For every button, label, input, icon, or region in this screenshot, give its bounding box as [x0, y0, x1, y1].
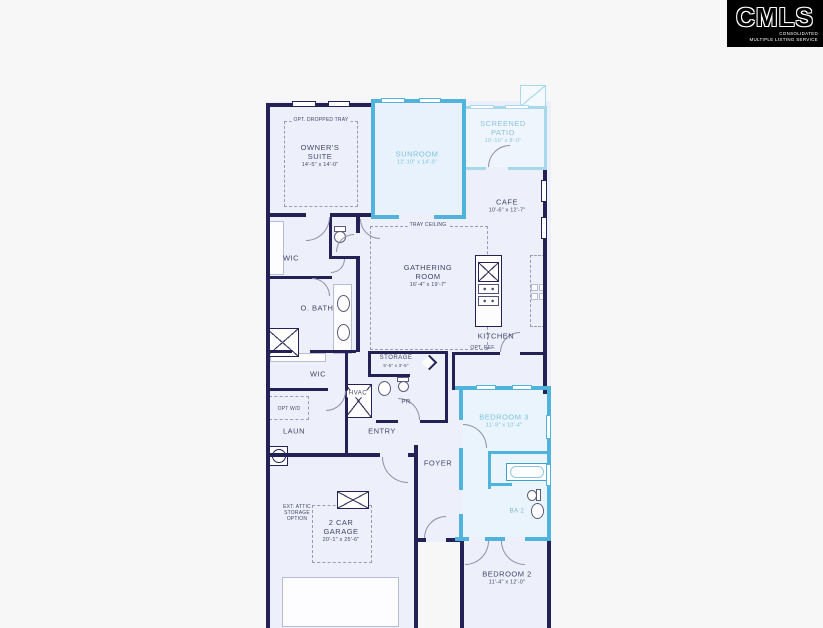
room-dims: 14'-5" x 14'-0"	[302, 162, 339, 169]
wall-segment	[376, 420, 398, 423]
cmls-logo: CMLS CONSOLIDATED MULTIPLE LISTING SERVI…	[727, 0, 823, 47]
toilet-icon	[527, 487, 542, 503]
sunroom-wall	[434, 215, 466, 219]
wall-segment	[482, 352, 500, 355]
tray-ceiling-note: TRAY CEILING	[408, 222, 449, 228]
cafe-label: CAFE 10'-6" x 12'-7"	[489, 198, 526, 215]
bath2-wall	[488, 451, 551, 454]
burner-icon	[478, 296, 499, 306]
window-icon	[476, 385, 496, 390]
room-dims: 11'-9" x 10'-4"	[486, 423, 522, 430]
patio-wall	[466, 167, 486, 170]
wall-segment	[420, 420, 448, 423]
room-dims: 12'-10" x 14'-0"	[397, 160, 437, 167]
room-name: SUNROOM	[396, 150, 439, 159]
window-icon	[328, 101, 350, 107]
dropped-tray-note: OPT. DROPPED TRAY	[292, 117, 351, 123]
room-name: KITCHEN	[478, 332, 514, 341]
bathtub-icon	[506, 463, 548, 481]
window-icon	[419, 98, 441, 103]
room-dims: 5'-5" x 3'-5"	[383, 363, 408, 368]
powder-room-label: PR	[401, 399, 410, 406]
note-text: TRAY CEILING	[410, 222, 447, 228]
bath2-wall	[525, 537, 551, 541]
opt-ref-note: OPT. REF.	[470, 345, 495, 351]
note-text: OPT. REF.	[470, 345, 495, 351]
foyer-label: FOYER	[424, 459, 452, 468]
laundry-label: LAUN	[283, 427, 305, 436]
room-dims: 10'-10" x 8'-0"	[485, 138, 522, 145]
wall-segment	[452, 352, 482, 355]
wall-segment	[266, 453, 380, 457]
wall-segment	[266, 103, 270, 628]
gathering-room-label: GATHERING ROOM 16'-4" x 19'-7"	[395, 263, 461, 289]
wall-segment	[266, 276, 332, 279]
screened-patio-label: SCREENED PATIO 10'-10" x 8'-0"	[475, 119, 531, 145]
owners-suite-label: OWNER'S SUITE 14'-5" x 14'-0"	[289, 143, 351, 169]
room-name: O. BATH	[301, 304, 334, 313]
wall-segment	[445, 351, 448, 423]
room-dims: 10'-6" x 12'-7"	[489, 208, 526, 215]
room-name: ENTRY	[368, 427, 396, 436]
cabinet-icon	[531, 284, 538, 291]
wall-segment	[368, 374, 410, 377]
floor-plan-image: OPT. DROPPED TRAY OWNER'S SUITE 14'-5" x…	[0, 0, 823, 628]
bedroom3-wall	[459, 390, 463, 420]
garage-label: 2 CAR GARAGE 20'-1" x 25'-6"	[315, 518, 367, 544]
room-name: WIC	[310, 370, 326, 379]
attic-ladder-icon	[337, 491, 369, 509]
wic-lower-label: WIC	[310, 370, 326, 379]
wall-segment	[368, 351, 424, 354]
wall-segment	[452, 352, 455, 390]
sink-icon	[531, 503, 544, 519]
wall-segment	[520, 352, 544, 355]
bedroom3-label: BEDROOM 3 11'-9" x 10'-4"	[479, 413, 529, 430]
cabinet-icon	[531, 293, 538, 300]
window-icon	[546, 464, 551, 486]
garage-door-opening	[282, 577, 399, 627]
sink-icon	[378, 381, 391, 396]
attic-option-note: EXT. ATTIC STORAGE OPTION	[281, 504, 313, 522]
bedroom3-wall	[459, 448, 463, 490]
window-icon	[541, 217, 547, 239]
window-icon	[505, 105, 529, 109]
toilet-icon	[395, 377, 411, 394]
bedroom3-wall	[547, 386, 551, 538]
room-name: LAUN	[283, 427, 305, 436]
room-dims: 20'-1" x 25'-6"	[323, 537, 360, 544]
wall-segment	[414, 445, 418, 628]
bath2-wall	[488, 483, 512, 486]
sunroom-wall	[462, 99, 466, 219]
sunroom-label: SUNROOM 12'-10" x 14'-0"	[396, 150, 439, 167]
room-name: SCREENED PATIO	[475, 119, 531, 137]
room-name: PR	[401, 399, 410, 406]
wall-segment	[547, 538, 551, 628]
wall-segment	[266, 213, 306, 217]
note-text: OPT. DROPPED TRAY	[294, 117, 349, 123]
wall-segment	[329, 217, 332, 259]
room-name: BEDROOM 3	[479, 413, 529, 422]
cooktop-icon	[478, 262, 499, 282]
cmls-logo-tagline: CONSOLIDATED MULTIPLE LISTING SERVICE	[749, 31, 818, 42]
room-name: 2 CAR GARAGE	[315, 518, 367, 536]
burner-icon	[478, 284, 499, 294]
entry-label: ENTRY	[368, 427, 396, 436]
note-text: OPT W/D	[278, 406, 301, 412]
room-dims: 11'-4" x 12'-0"	[489, 580, 525, 587]
wall-segment	[356, 256, 360, 352]
room-name: BEDROOM 2	[482, 570, 532, 579]
room-dims: 16'-4" x 19'-7"	[410, 282, 447, 289]
wall-segment	[414, 538, 426, 542]
room-name: HVAC	[347, 390, 369, 397]
window-icon	[546, 415, 551, 439]
sunroom-wall	[371, 103, 375, 217]
window-icon	[381, 98, 405, 103]
bedroom2-label: BEDROOM 2 11'-4" x 12'-0"	[482, 570, 532, 587]
chimney-icon	[520, 85, 546, 107]
wall-segment	[266, 103, 375, 107]
sink-icon	[337, 295, 350, 312]
wall-segment	[330, 213, 375, 217]
room-name: GATHERING ROOM	[395, 263, 461, 281]
opt-wd-note: OPT W/D	[276, 406, 303, 412]
wall-segment	[345, 350, 348, 455]
cmls-logo-text: CMLS	[736, 4, 814, 30]
wall-segment	[310, 350, 356, 353]
sink-icon	[337, 324, 350, 341]
window-icon	[292, 101, 316, 107]
room-name: CAFE	[496, 198, 518, 207]
hvac-unit-icon	[345, 384, 372, 418]
wall-segment	[460, 541, 464, 628]
hvac-label: HVAC	[347, 390, 369, 397]
tagline-line: MULTIPLE LISTING SERVICE	[749, 37, 818, 43]
room-name: WIC	[283, 254, 299, 263]
kitchen-label: KITCHEN	[478, 332, 514, 341]
patio-wall	[544, 106, 547, 170]
wall-segment	[266, 350, 292, 353]
storage-label: STORAGE 5'-5" x 3'-5"	[380, 355, 413, 369]
room-name: STORAGE	[380, 355, 413, 362]
owners-bath-label: O. BATH	[301, 304, 334, 313]
room-name: FOYER	[424, 459, 452, 468]
window-icon	[512, 385, 532, 390]
room-name: OWNER'S SUITE	[289, 143, 351, 161]
window-icon	[470, 105, 494, 109]
window-icon	[541, 180, 547, 202]
note-text: EXT. ATTIC STORAGE OPTION	[281, 504, 313, 522]
room-name: BA 2	[510, 508, 525, 515]
closet-shelves	[269, 221, 284, 275]
wall-segment	[266, 388, 328, 391]
patio-wall	[508, 167, 547, 170]
bath2-label: BA 2	[510, 508, 525, 515]
wic-upper-label: WIC	[283, 254, 299, 263]
exterior-gap	[418, 542, 460, 628]
